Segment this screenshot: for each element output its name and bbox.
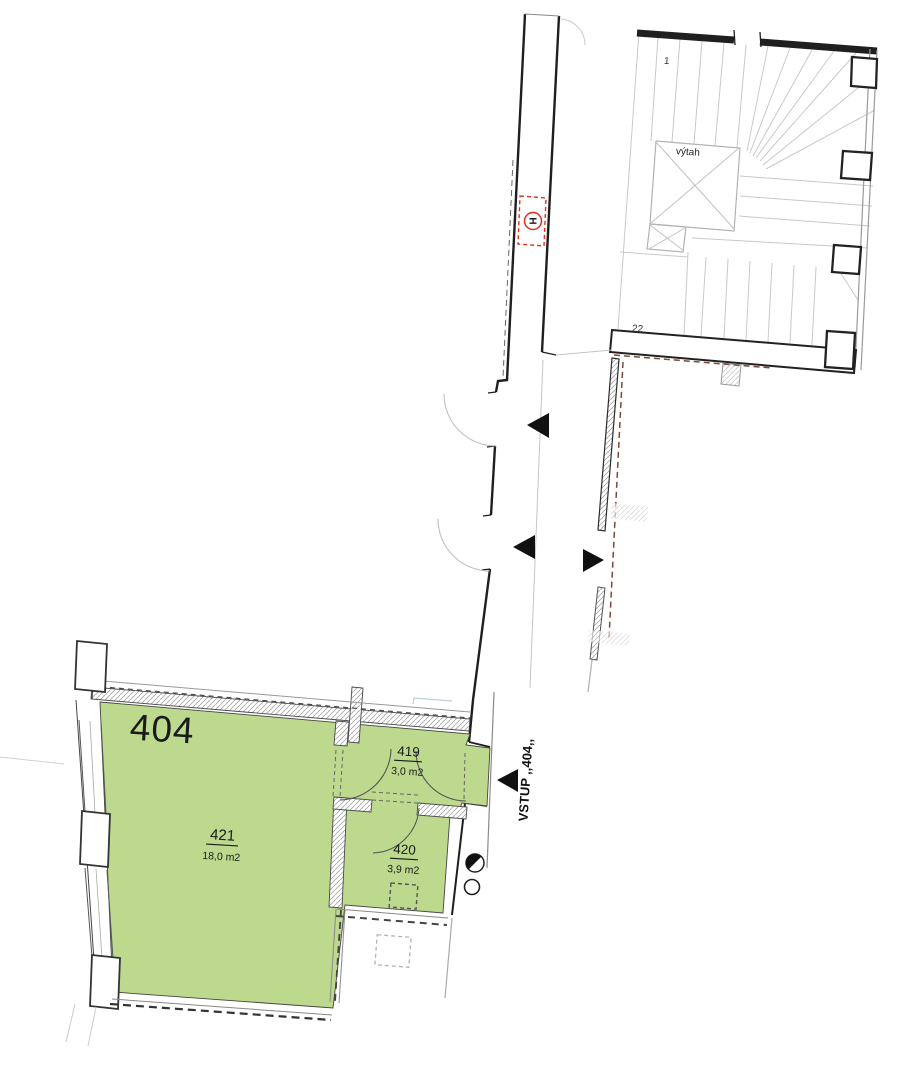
wall-stub-upper bbox=[611, 503, 648, 522]
floor-plan-canvas: výtah 1 22 bbox=[0, 0, 900, 1072]
floor-plan-svg: výtah 1 22 bbox=[0, 0, 900, 1072]
room-419-area: 3,0 m2 bbox=[391, 765, 424, 779]
room-419-number: 419 bbox=[397, 743, 420, 759]
room-420-number: 420 bbox=[393, 841, 416, 857]
apartment-404: 404 421 18,0 m2 419 3,0 m2 420 3,9 m2 bbox=[0, 641, 490, 1046]
annotations: VSTUP ,,404,, bbox=[465, 413, 605, 895]
stair-door-arrow-icon bbox=[583, 549, 604, 572]
wall-pillar-stub bbox=[721, 363, 741, 386]
railing-wall-lower bbox=[590, 587, 605, 660]
door-arrow-1-icon bbox=[527, 413, 549, 438]
circle-symbol-icon bbox=[465, 880, 480, 895]
gallery-railing-wall bbox=[588, 358, 648, 692]
corridor-right-wall bbox=[525, 14, 559, 355]
stair-treads bbox=[620, 37, 875, 345]
elevator-label: výtah bbox=[676, 146, 701, 159]
staircase-left-edge bbox=[618, 31, 639, 329]
hydrant-letter: H bbox=[527, 217, 538, 224]
room-421-area: 18,0 m2 bbox=[202, 850, 241, 864]
window-sill-blue bbox=[413, 698, 452, 704]
entrance-label: VSTUP ,,404,, bbox=[515, 738, 535, 822]
corridor-top-door-arc bbox=[561, 19, 585, 45]
stair-step-first: 1 bbox=[664, 56, 671, 67]
room-421-number: 421 bbox=[210, 826, 236, 844]
floor-opening-below bbox=[375, 935, 411, 968]
room-420-area: 3,9 m2 bbox=[387, 863, 420, 877]
apartment-number-text: 404 bbox=[129, 707, 196, 752]
hydrant-symbol: H bbox=[518, 196, 546, 246]
staircase-block: výtah 1 22 bbox=[610, 30, 877, 386]
neighbour-door-arcs bbox=[438, 394, 496, 571]
railing-wall-fade bbox=[588, 660, 592, 692]
stair-step-last: 22 bbox=[632, 323, 644, 335]
staircase-outer-walls bbox=[637, 30, 877, 370]
door-arrow-2-icon bbox=[513, 535, 535, 559]
entrance-arrow-icon bbox=[497, 769, 518, 792]
utility-symbols bbox=[465, 854, 485, 895]
apartment-number: 404 bbox=[129, 707, 196, 752]
